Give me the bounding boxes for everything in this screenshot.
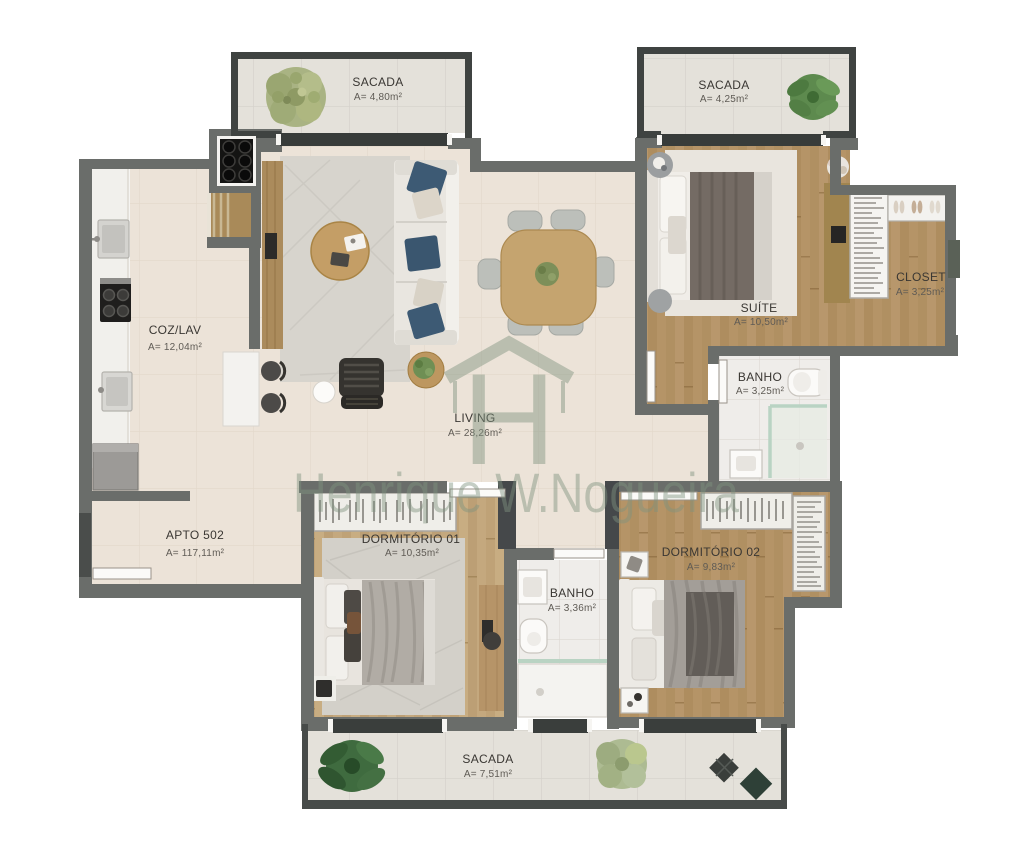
svg-text:BANHO: BANHO bbox=[550, 586, 594, 600]
svg-text:SUÍTE: SUÍTE bbox=[741, 300, 778, 315]
svg-text:DORMITÓRIO 02: DORMITÓRIO 02 bbox=[662, 544, 761, 559]
svg-text:COZ/LAV: COZ/LAV bbox=[149, 323, 202, 337]
svg-text:SACADA: SACADA bbox=[698, 78, 749, 92]
svg-text:A= 9,83m²: A= 9,83m² bbox=[687, 562, 736, 573]
svg-text:A= 4,80m²: A= 4,80m² bbox=[354, 92, 403, 103]
svg-text:DORMITÓRIO 01: DORMITÓRIO 01 bbox=[362, 531, 461, 546]
svg-text:A= 10,35m²: A= 10,35m² bbox=[385, 548, 439, 559]
svg-text:CLOSET: CLOSET bbox=[896, 270, 946, 284]
svg-text:A= 117,11m²: A= 117,11m² bbox=[166, 548, 225, 559]
svg-text:A= 3,25m²: A= 3,25m² bbox=[736, 386, 785, 397]
svg-text:BANHO: BANHO bbox=[738, 370, 782, 384]
svg-text:A= 12,04m²: A= 12,04m² bbox=[148, 342, 202, 353]
svg-text:SACADA: SACADA bbox=[352, 75, 403, 89]
svg-text:A= 3,25m²: A= 3,25m² bbox=[896, 287, 945, 298]
svg-text:APTO 502: APTO 502 bbox=[166, 528, 224, 542]
svg-text:SACADA: SACADA bbox=[462, 752, 513, 766]
svg-text:Henrique W.Nogueira: Henrique W.Nogueira bbox=[293, 461, 740, 524]
svg-text:A= 4,25m²: A= 4,25m² bbox=[700, 94, 749, 105]
svg-text:A= 7,51m²: A= 7,51m² bbox=[464, 769, 513, 780]
svg-text:A= 3,36m²: A= 3,36m² bbox=[548, 603, 597, 614]
svg-text:A= 10,50m²: A= 10,50m² bbox=[734, 317, 788, 328]
